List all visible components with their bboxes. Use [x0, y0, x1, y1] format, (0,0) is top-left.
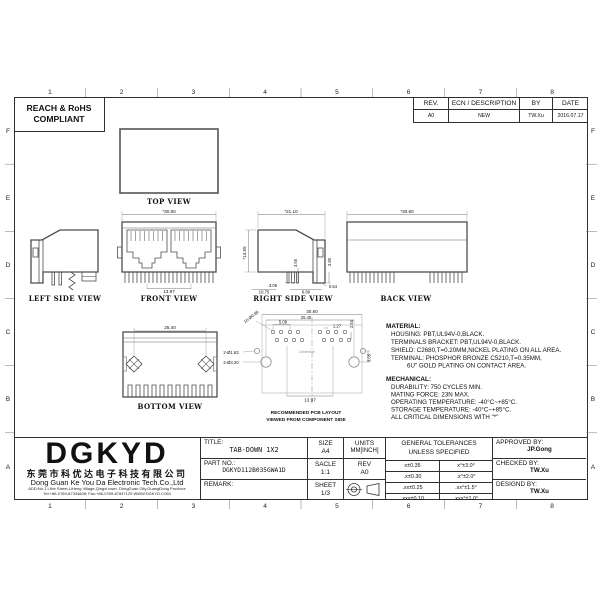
tolerance-header-1: GENERAL TOLERANCES [401, 440, 476, 449]
sheet-label: SHEET [315, 482, 336, 490]
col-2: 2 [120, 89, 124, 96]
projection-symbol-icon [345, 480, 385, 499]
col-8: 8 [550, 89, 554, 96]
checked-cell: CHECKED BY: TW.Xu [492, 458, 586, 479]
col-6b: 6 [407, 503, 411, 510]
right-height-dim: *13.55 [242, 246, 247, 260]
tolerance-header-cell: GENERAL TOLERANCES UNLESS SPECIFIED [385, 437, 492, 460]
top-view-drawing: TOP VIEW [120, 129, 218, 206]
drawing-sheet: REACH & RoHS COMPLIANT REV. ECN / DESCRI… [0, 0, 600, 600]
tol-lin-2: .x±0.30 [386, 472, 439, 482]
checked-value: TW.Xu [493, 467, 586, 474]
part-value: DGKYD112B035GWA1D [201, 467, 307, 474]
rev-cell: REVA0 [343, 458, 385, 479]
row-a: A [6, 464, 11, 471]
titleblock-top-border [14, 437, 588, 438]
pcb-overall-dim: 30.60 [306, 309, 318, 314]
pcb-holepitch-dim: 25.40 [301, 315, 312, 320]
size-value: A4 [321, 448, 329, 456]
material-line: TERMINALS BRACKET: PBT,UL94V-0,BLACK. [391, 339, 521, 346]
back-view-drawing: *30.80 BACK VIEW [347, 209, 467, 303]
pcb-smallholes-callout: 2-Ø1.63 [223, 350, 239, 355]
sheet-cell: SHEET1/3 [307, 479, 343, 500]
pcb-layout-drawing: 30.60 25.40 5.08 1.27 2.54 13.97 3.05 16… [223, 309, 371, 423]
size-label: SIZE [318, 440, 332, 448]
approved-cell: APPROVED BY: JP.Gong [492, 437, 586, 458]
right-d3-dim: 0.54 [329, 284, 338, 289]
company-contact: Tel:+86-0769-87334608; Fax:+86-0769-8784… [18, 492, 197, 497]
approved-label: APPROVED BY: [493, 438, 586, 446]
tol-lin-4: .xxx±0.10 [386, 494, 439, 500]
col-1: 1 [48, 89, 52, 96]
material-line: 6U" GOLD PLATING ON CONTACT AREA. [407, 363, 526, 370]
col-4b: 4 [263, 503, 267, 510]
projection-symbol-cell [343, 479, 385, 500]
right-tablen-dim: 3.80 [327, 257, 332, 266]
pcb-padpitch-dim: 1.27 [333, 324, 342, 329]
left-side-view-drawing: LEFT SIDE VIEW [29, 230, 102, 303]
part-cell: PART NO.: DGKYD112B035GWA1D [200, 458, 307, 479]
row-b-r: B [591, 396, 596, 403]
col-1b: 1 [48, 503, 52, 510]
row-d-r: D [591, 262, 596, 269]
scale-cell: SACLE1:1 [307, 458, 343, 479]
bottom-view-label: BOTTOM VIEW [138, 402, 203, 411]
right-depth-dim: *21.10 [284, 209, 298, 214]
col-4: 4 [263, 89, 267, 96]
col-8b: 8 [550, 503, 554, 510]
bottom-view-drawing: 25.40 BOTTOM VIEW [123, 325, 217, 411]
designed-label: DESIGND BY: [493, 480, 586, 488]
row-c: C [6, 329, 11, 336]
checked-label: CHECKED BY: [493, 459, 586, 467]
tol-lin-1: x±0.35 [386, 461, 439, 471]
tol-ang-4: .xxx°±1.0° [439, 494, 492, 500]
col-3: 3 [192, 89, 196, 96]
back-view-label: BACK VIEW [381, 294, 432, 303]
tol-ang-2: .x°±2.0° [439, 472, 492, 482]
row-f-r: F [591, 128, 595, 135]
col-5b: 5 [335, 503, 339, 510]
remark-cell: REMARK: [200, 479, 307, 500]
tol-ang-1: x°±3.0° [439, 461, 492, 471]
row-b: B [6, 396, 11, 403]
units-cell: UNITSMM[INCH] [343, 437, 385, 458]
scale-value: 1:1 [321, 469, 330, 477]
row-d: D [6, 262, 11, 269]
tolerance-header-2: UNLESS SPECIFIED [408, 449, 469, 458]
right-side-view-drawing: *21.10 *13.55 3.55 3.80 3.05 10.75 6.89 … [242, 209, 338, 303]
units-value: MM[INCH] [351, 448, 379, 456]
title-cell: TITLE: TAB-DOWN 1X2 [200, 437, 307, 458]
pcb-rowoffset-dim: 2.54 [349, 319, 354, 328]
material-notes: MATERIAL: HOUSING: PBT,UL94V-0,BLACK. TE… [386, 323, 561, 370]
rev-label: REV [358, 461, 371, 469]
scale-label: SACLE [315, 461, 336, 469]
col-7: 7 [479, 89, 483, 96]
row-e-r: E [591, 195, 596, 202]
rev-value2: A0 [360, 469, 368, 477]
mechanical-notes: MECHANICAL: DURABILITY: 750 CYCLES MIN. … [386, 376, 517, 421]
pcb-centerline-label: CenterLine [299, 350, 315, 354]
pcb-caption-1: RECOMMENDED PCB LAYOUT [271, 410, 342, 416]
designed-value: TW.Xu [493, 488, 586, 495]
designed-cell: DESIGND BY: TW.Xu [492, 479, 586, 500]
back-width-dim: *30.80 [400, 209, 414, 214]
front-view-label: FRONT VIEW [141, 294, 198, 303]
pcb-bigholes-callout: 2-Ø3.20 [223, 360, 239, 365]
front-width-dim: *30.80 [162, 209, 176, 214]
mechanical-line: DURABILITY: 750 CYCLES MIN. [391, 384, 482, 391]
pcb-portpitch-dim: 13.97 [304, 398, 316, 403]
drawing-canvas: 1 2 3 4 5 6 7 8 1 2 3 4 5 6 7 8 F E D C … [0, 0, 600, 600]
bottom-pitch-dim: 25.40 [164, 325, 176, 330]
row-f: F [6, 128, 10, 135]
col-6: 6 [407, 89, 411, 96]
material-line: SHIELD: C2680,T=0.20MM,NICKEL PLATING ON… [391, 347, 561, 354]
mechanical-line: ALL CRITICAL DIMENSIONS WITH "*" [391, 414, 498, 421]
pcb-caption-2: VIEWED FROM COMPONENT SIDE [266, 417, 346, 423]
pcb-holeoffset-dim: 3.05 [367, 353, 372, 362]
col-5: 5 [335, 89, 339, 96]
units-label: UNITS [355, 440, 374, 448]
approved-value: JP.Gong [493, 446, 586, 453]
sheet-value: 1/3 [321, 490, 330, 498]
right-view-label: RIGHT SIDE VIEW [253, 294, 332, 303]
mechanical-line: STORAGE TEMPERATURE: -40°C~+85°C. [391, 407, 511, 414]
top-view-label: TOP VIEW [147, 197, 191, 206]
remark-label: REMARK: [201, 480, 307, 488]
right-pinlen-dim: 3.55 [293, 258, 298, 267]
material-line: TERMINAL: PHOSPHOR BRONZE C5210,T=0.35MM… [391, 355, 542, 362]
mechanical-title: MECHANICAL: [386, 376, 431, 383]
size-cell: SIZEA4 [307, 437, 343, 458]
title-label: TITLE: [201, 438, 307, 446]
front-view-drawing: *30.80 13.97 FRONT VIEW [118, 209, 221, 303]
company-block: DGKYD 东莞市科优达电子科技有限公司 Dong Guan Ke You Da… [14, 437, 200, 500]
tolerance-grid: x±0.35x°±3.0° .x±0.30.x°±2.0° .xx±0.25.x… [385, 460, 492, 500]
title-value: TAB-DOWN 1X2 [201, 446, 307, 454]
part-label: PART NO.: [201, 459, 307, 467]
material-line: HOUSING: PBT,UL94V-0,BLACK. [391, 331, 484, 338]
mechanical-line: MATING FORCE: 23N MAX. [391, 392, 470, 399]
mechanical-line: OPERATING TEMPERATURE: -40°C~+85°C. [391, 399, 517, 406]
right-pinoff-dim: 3.05 [269, 283, 278, 288]
row-a-r: A [591, 464, 596, 471]
row-c-r: C [591, 329, 596, 336]
row-e: E [6, 195, 11, 202]
pcb-padspan-dim: 5.08 [279, 319, 288, 324]
col-7b: 7 [479, 503, 483, 510]
tol-ang-3: .xx°±1.5° [439, 483, 492, 493]
col-3b: 3 [192, 503, 196, 510]
left-view-label: LEFT SIDE VIEW [29, 294, 102, 303]
tol-lin-3: .xx±0.25 [386, 483, 439, 493]
company-logo: DGKYD [14, 439, 200, 469]
col-2b: 2 [120, 503, 124, 510]
material-title: MATERIAL: [386, 323, 421, 330]
